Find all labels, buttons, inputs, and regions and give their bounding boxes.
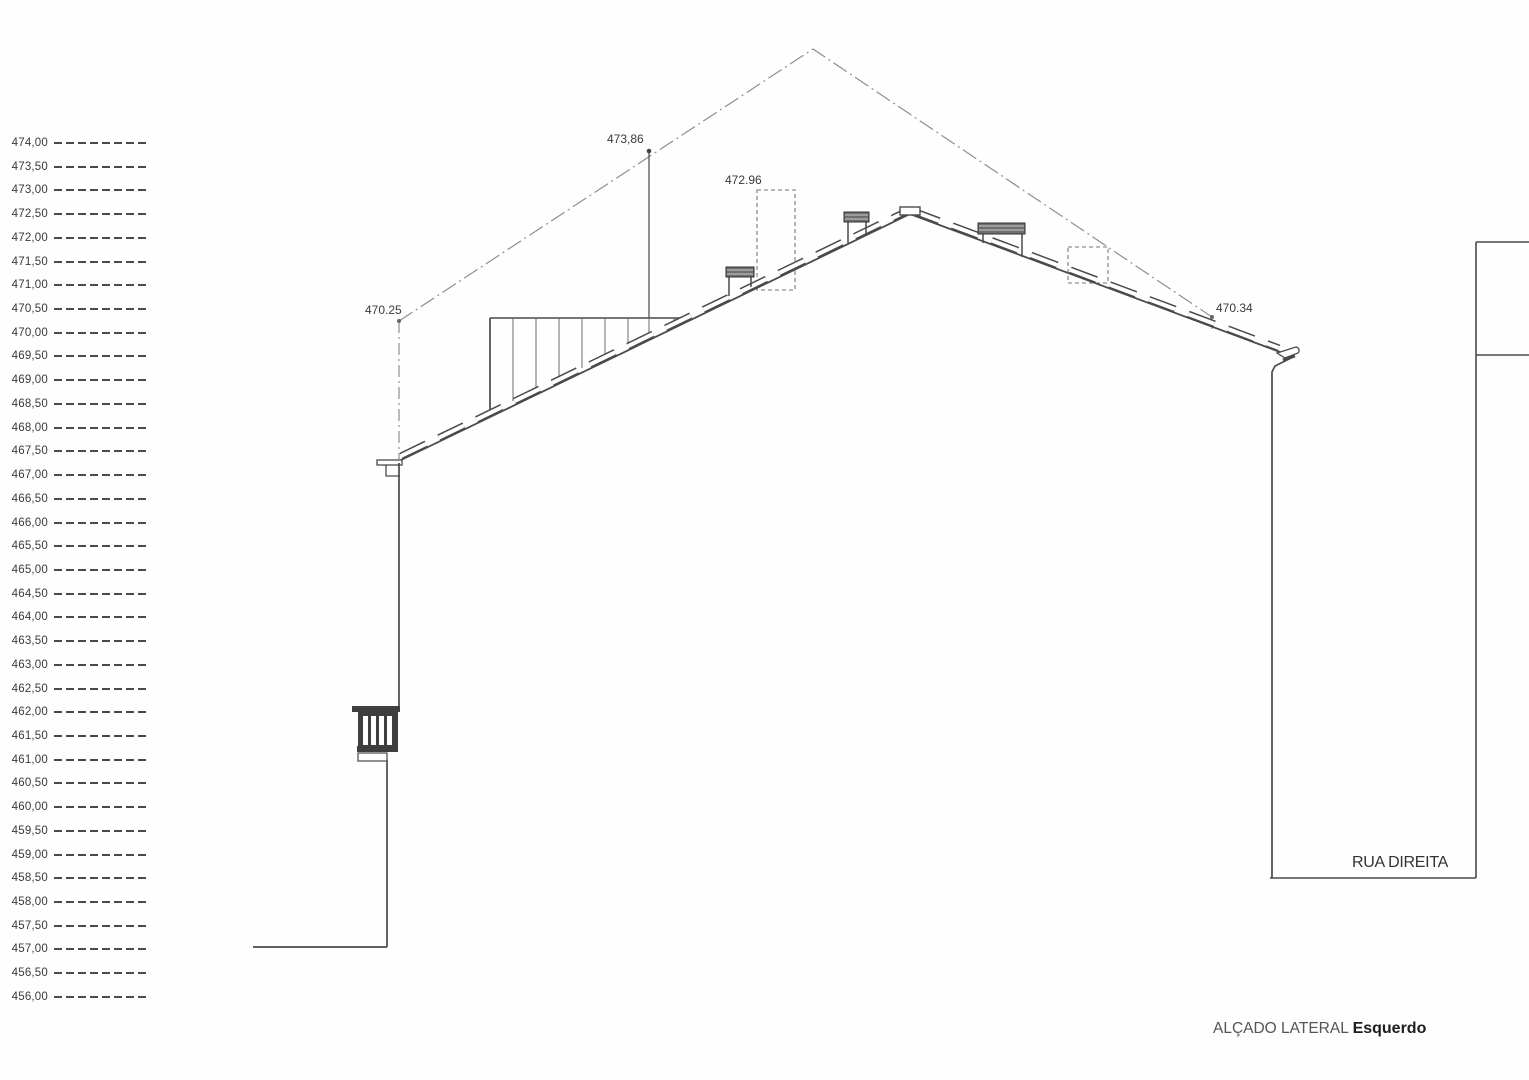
ridge-dimension-line (647, 149, 652, 318)
drawing-title-emphasis: Esquerdo (1353, 1020, 1427, 1037)
left-wall (253, 463, 399, 947)
elevation-sheet: 474,00473,50473,00472,50472,00471,50471,… (0, 0, 1529, 1080)
chimney-right-slope (978, 223, 1025, 257)
height-limit-points (397, 315, 1214, 323)
drawing-title-main: ALÇADO LATERAL (1213, 1020, 1348, 1037)
annotation-chimney-height: 472.96 (725, 173, 762, 187)
right-gutter (1277, 347, 1299, 360)
ridge-cap (900, 207, 920, 215)
street-box (1270, 242, 1529, 878)
right-wall (1272, 358, 1291, 878)
drawing-title: ALÇADO LATERAL Esquerdo (1213, 1020, 1426, 1038)
balcony-ledge (358, 753, 387, 761)
elevation-drawing (0, 0, 1529, 1080)
balcony (352, 706, 400, 761)
street-label: RUA DIREITA (1352, 854, 1448, 872)
roof-lines (399, 214, 1280, 461)
annotation-right-eave-height: 470.34 (1216, 301, 1253, 315)
dashed-chimney-outline (757, 190, 795, 290)
annotation-max-height: 473,86 (607, 132, 644, 146)
annotation-left-eave-height: 470.25 (365, 303, 402, 317)
roof-tiles (401, 207, 1279, 456)
